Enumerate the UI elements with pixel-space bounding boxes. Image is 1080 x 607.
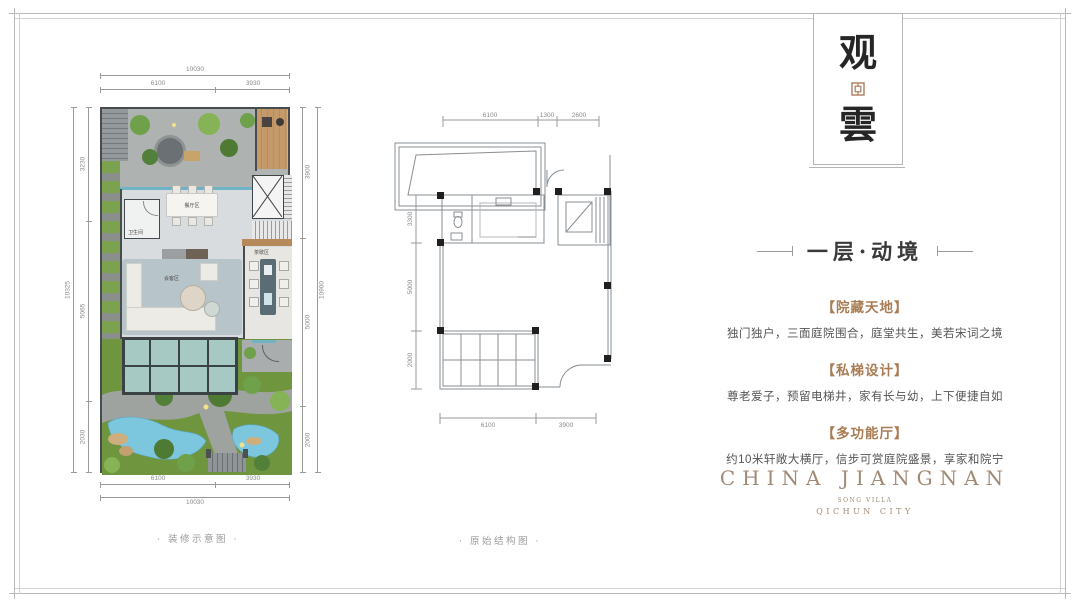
gate-post xyxy=(243,449,248,458)
frame-bottom-outer xyxy=(9,593,1071,594)
coffee-table xyxy=(180,285,206,311)
section-body-elevator: 尊老爱子，预留电梯井，家有长与幼，上下便捷自如 xyxy=(690,388,1040,404)
dim-label: 6100 xyxy=(151,80,165,87)
room-label-living: 会客区 xyxy=(164,275,179,282)
stair-treads xyxy=(284,175,292,219)
caption-original-plan: · 原始结构图 · xyxy=(390,533,610,547)
dim-label: 6100 xyxy=(481,422,496,429)
tree-icon xyxy=(240,113,255,128)
brand-logo: CHINA JIANGNAN SONG VILLA QICHUN CITY xyxy=(690,466,1040,516)
floor-title: 一层·动境 xyxy=(807,236,923,266)
bathroom: 卫生间 xyxy=(124,199,160,239)
patio-window-band xyxy=(252,340,276,343)
stair-run xyxy=(252,221,292,239)
section-heading-elevator: 【私梯设计】 xyxy=(690,359,1040,379)
banner-base-line xyxy=(809,167,905,168)
tea-chair xyxy=(249,261,259,271)
tea-chair xyxy=(279,297,289,307)
room-label-dining: 餐厅区 xyxy=(184,202,199,209)
floor-title-row: 一层·动境 xyxy=(690,236,1040,266)
floorplan-decorated: 10030 6100 3930 6100 3930 10030 3230 506… xyxy=(58,63,324,551)
dim-label: 6100 xyxy=(151,475,165,482)
floorplan-original: 6100 1300 2600 6100 3900 3300 5000 2000 xyxy=(368,95,628,485)
section-heading-hall: 【多功能厅】 xyxy=(690,422,1040,442)
tree-icon xyxy=(142,149,158,165)
wall xyxy=(255,109,257,171)
room-label-bathroom: 卫生间 xyxy=(128,229,143,236)
elevator-x-icon xyxy=(253,176,282,217)
armchair xyxy=(200,263,218,281)
dining-chair xyxy=(188,217,197,226)
skylight-mullion xyxy=(124,365,236,367)
frame-left-outer xyxy=(14,8,15,599)
brand-name: CHINA JIANGNAN xyxy=(690,466,1040,490)
dim-line xyxy=(73,107,74,473)
dim-line xyxy=(302,107,303,473)
frame-bottom-inner xyxy=(14,588,1066,589)
door-arc-icon xyxy=(143,201,158,216)
dim-label: 3300 xyxy=(407,211,414,226)
dim-label: 2600 xyxy=(572,112,587,119)
dim-line xyxy=(100,497,290,498)
section-body-hall: 约10米轩敞大横厅，信步可赏庭院盛景，享家和院宁 xyxy=(690,451,1040,467)
tea-chair xyxy=(249,297,259,307)
sofa xyxy=(126,307,216,331)
poster-page: { "page": { "captions": { "left": "· 装修示… xyxy=(0,0,1080,607)
dining-table: 餐厅区 xyxy=(166,193,218,217)
dining-chair xyxy=(204,217,213,226)
frame-right-inner xyxy=(1060,13,1061,594)
dim-label: 3900 xyxy=(559,422,574,429)
elevator-shaft xyxy=(252,175,284,219)
dim-label: 3900 xyxy=(305,165,312,179)
section-body-courtyard: 独门独户，三面庭院围合，庭堂共生，美若宋词之境 xyxy=(690,325,1040,341)
gate-post xyxy=(206,449,211,458)
dim-line xyxy=(88,107,89,473)
frame-top-outer xyxy=(9,13,1071,14)
dim-label: 10030 xyxy=(186,66,204,73)
dim-label: 2030 xyxy=(80,430,87,444)
info-panel: 一层·动境 【院藏天地】 独门独户，三面庭院围合，庭堂共生，美若宋词之境 【私梯… xyxy=(690,236,1040,467)
dim-label: 5000 xyxy=(407,279,414,294)
wall xyxy=(243,246,245,339)
dim-label: 3930 xyxy=(246,80,260,87)
tea-chair xyxy=(279,279,289,289)
frame-top-inner xyxy=(14,18,1066,19)
tea-table xyxy=(260,259,276,315)
dim-label: 6100 xyxy=(483,112,498,119)
side-table xyxy=(204,301,220,317)
outdoor-stair xyxy=(102,109,128,161)
dim-label: 3230 xyxy=(80,157,87,171)
dim-label: 10030 xyxy=(186,499,204,506)
section-heading-courtyard: 【院藏天地】 xyxy=(690,296,1040,316)
dim-label: 5065 xyxy=(80,304,87,318)
decorated-plan-body: 餐厅区 卫生间 会客区 茶歇区 xyxy=(100,107,290,473)
seal-icon xyxy=(851,82,865,96)
entry-gate xyxy=(208,453,246,472)
dim-label: 2000 xyxy=(305,433,312,447)
dim-line xyxy=(100,75,290,76)
deck-furniture xyxy=(262,117,272,127)
dining-chair xyxy=(172,217,181,226)
dim-label: 10325 xyxy=(65,281,72,299)
dim-label: 3930 xyxy=(246,475,260,482)
room-label-tea: 茶歇区 xyxy=(254,249,269,256)
courtyard-mat xyxy=(184,151,200,161)
tea-chair xyxy=(249,279,259,289)
banner-char-top: 观 xyxy=(839,34,877,72)
project-name-banner: 观 雲 xyxy=(813,13,903,165)
tea-chair xyxy=(279,261,289,271)
tree-icon xyxy=(244,347,256,359)
title-bracket-left-icon xyxy=(757,251,793,252)
brand-subtitle-1: SONG VILLA xyxy=(690,497,1040,504)
dim-label: 1300 xyxy=(540,112,555,119)
dim-label: 10900 xyxy=(319,281,326,299)
brand-subtitle-2: QICHUN CITY xyxy=(690,507,1040,516)
frame-left-inner xyxy=(19,13,20,594)
tree-icon xyxy=(198,113,220,135)
tea-room-threshold xyxy=(242,239,292,246)
title-bracket-right-icon xyxy=(937,251,973,252)
banner-char-bottom: 雲 xyxy=(839,106,877,144)
lamp-dot xyxy=(172,123,176,127)
dim-label: 5000 xyxy=(305,315,312,329)
dim-label: 2000 xyxy=(407,352,414,367)
tree-icon xyxy=(130,115,150,135)
frame-right-outer xyxy=(1065,8,1066,599)
tree-icon xyxy=(220,139,238,157)
deck-furniture xyxy=(276,118,284,126)
dim-line xyxy=(100,89,290,90)
courtyard-firepit xyxy=(154,135,186,167)
dim-line xyxy=(100,484,290,485)
